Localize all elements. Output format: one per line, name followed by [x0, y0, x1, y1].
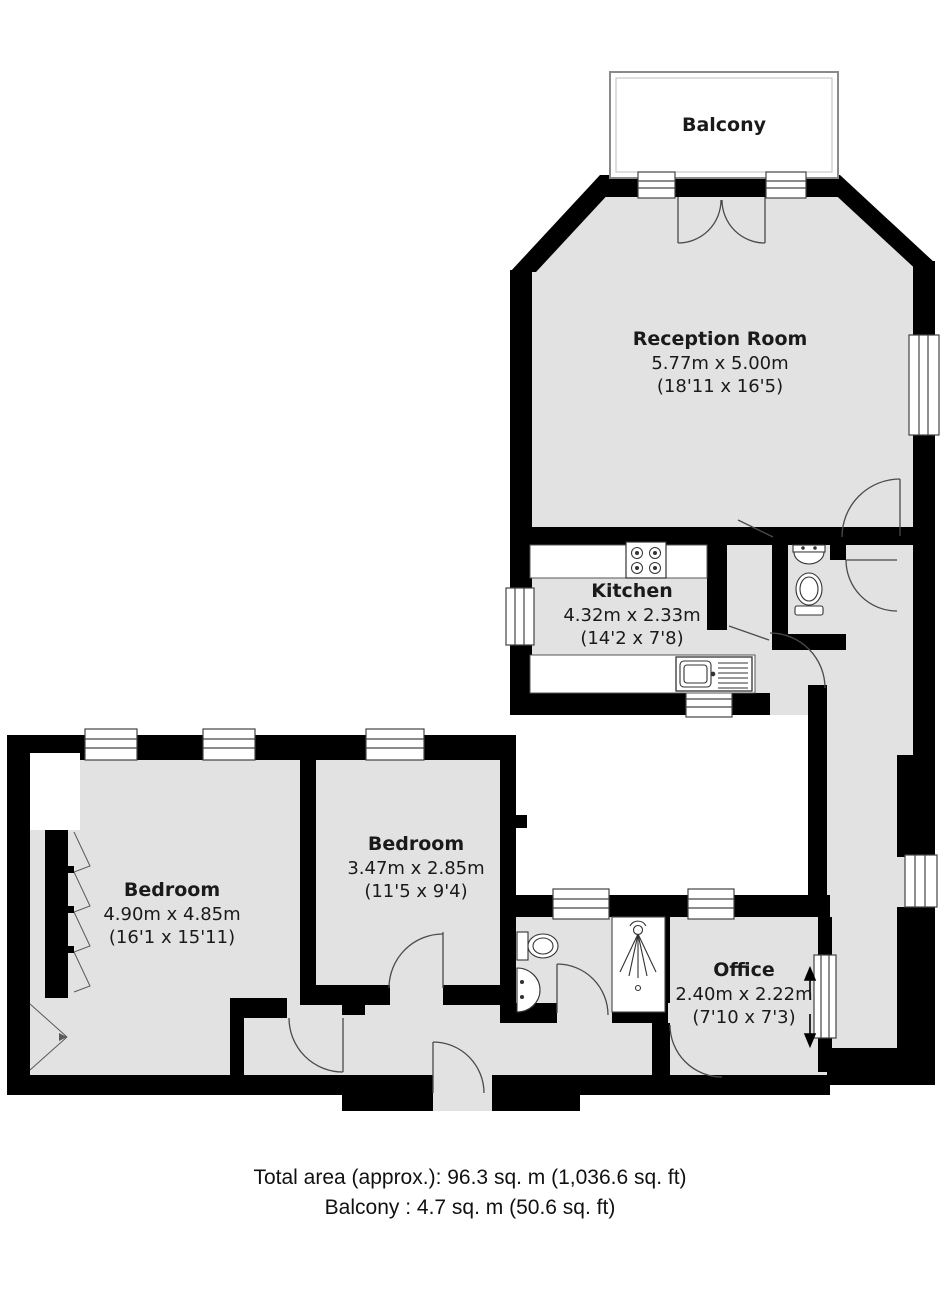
hob-icon — [626, 542, 666, 578]
room-dims-imperial: (16'1 x 15'11) — [103, 926, 240, 950]
total-area-text: Total area (approx.): 96.3 sq. m (1,036.… — [253, 1163, 686, 1193]
shower-icon — [612, 917, 665, 1012]
room-dims-metric: 3.47m x 2.85m — [347, 857, 484, 881]
floorplan-drawing — [0, 0, 940, 1301]
room-dims-metric: 4.32m x 2.33m — [563, 604, 700, 628]
floorplan-page: Balcony Reception Room 5.77m x 5.00m (18… — [0, 0, 940, 1301]
room-label-office: Office 2.40m x 2.22m (7'10 x 7'3) — [675, 959, 812, 1030]
room-label-reception: Reception Room 5.77m x 5.00m (18'11 x 16… — [633, 328, 808, 399]
room-label-kitchen: Kitchen 4.32m x 2.33m (14'2 x 7'8) — [563, 580, 700, 651]
sink-icon — [676, 657, 752, 691]
room-dims-metric: 5.77m x 5.00m — [633, 352, 808, 376]
room-name: Kitchen — [563, 580, 700, 604]
balcony-area-text: Balcony : 4.7 sq. m (50.6 sq. ft) — [325, 1193, 616, 1223]
room-dims-imperial: (7'10 x 7'3) — [675, 1006, 812, 1030]
room-dims-metric: 2.40m x 2.22m — [675, 983, 812, 1007]
bathroom-toilet-icon — [517, 932, 558, 960]
room-label-bedroom-2: Bedroom 3.47m x 2.85m (11'5 x 9'4) — [347, 833, 484, 904]
wc-toilet-icon — [795, 573, 823, 615]
room-dims-imperial: (14'2 x 7'8) — [563, 627, 700, 651]
room-dims-metric: 4.90m x 4.85m — [103, 903, 240, 927]
room-name: Office — [675, 959, 812, 983]
room-dims-imperial: (11'5 x 9'4) — [347, 880, 484, 904]
room-name: Bedroom — [347, 833, 484, 857]
room-label-bedroom-1: Bedroom 4.90m x 4.85m (16'1 x 15'11) — [103, 879, 240, 950]
room-name: Reception Room — [633, 328, 808, 352]
room-dims-imperial: (18'11 x 16'5) — [633, 375, 808, 399]
room-name: Bedroom — [103, 879, 240, 903]
balcony-label: Balcony — [682, 114, 766, 136]
